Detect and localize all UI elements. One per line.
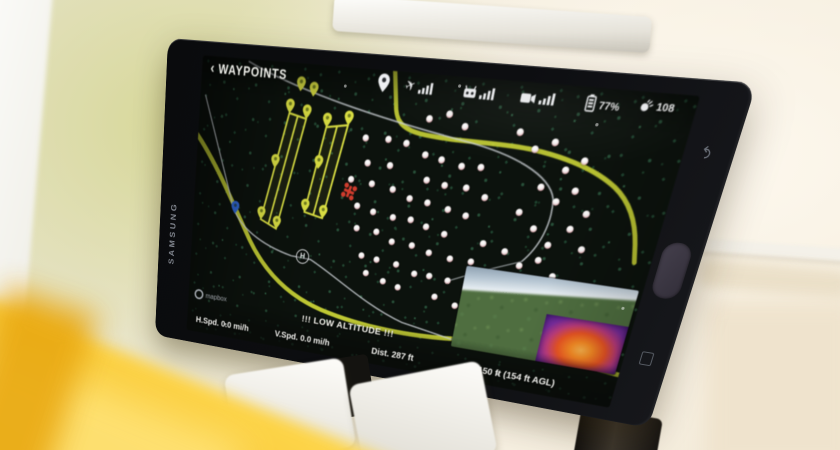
aircraft-signal-indicator: ✈ xyxy=(404,79,435,96)
waypoint-pin[interactable] xyxy=(296,76,306,92)
signal-bars-icon xyxy=(479,85,498,101)
waypoint-pin[interactable] xyxy=(272,215,281,229)
waypoint-pin[interactable] xyxy=(285,98,295,113)
samsung-logo: SAMSUNG xyxy=(168,138,183,265)
blue-pin[interactable] xyxy=(231,200,240,214)
waypoint-pin[interactable] xyxy=(257,206,266,220)
video-signal-indicator xyxy=(520,89,558,107)
mapbox-icon xyxy=(194,288,203,299)
remote-signal-indicator xyxy=(462,84,497,101)
video-camera-icon xyxy=(520,92,538,105)
home-button[interactable] xyxy=(649,241,694,300)
waypoint-pin[interactable] xyxy=(344,110,355,125)
waypoint-pin[interactable] xyxy=(314,155,324,170)
signal-bars-icon xyxy=(538,90,558,106)
signal-bars-icon xyxy=(418,80,436,96)
waypoint-pin[interactable] xyxy=(271,154,281,169)
satellite-count: 108 xyxy=(655,101,676,116)
waypoint-pin[interactable] xyxy=(322,112,333,127)
waypoint-pin[interactable] xyxy=(318,204,328,218)
satellite-icon xyxy=(638,99,655,114)
aircraft-icon: ✈ xyxy=(404,77,417,95)
waypoint-pin[interactable] xyxy=(309,81,319,97)
background-shape xyxy=(705,300,840,450)
app-screen[interactable]: H ‹ WAYPOINTS xyxy=(187,55,701,407)
back-icon[interactable]: ‹ xyxy=(210,62,216,75)
mapbox-label: mapbox xyxy=(205,292,227,303)
recents-capacitive-icon[interactable] xyxy=(639,351,655,366)
back-capacitive-icon[interactable]: ↶ xyxy=(693,144,715,159)
remote-controller-icon xyxy=(462,85,478,100)
battery-percent: 77% xyxy=(597,100,621,115)
battery-indicator: 77% xyxy=(583,94,622,114)
waypoint-pin[interactable] xyxy=(300,198,310,212)
dust-speck xyxy=(224,323,226,326)
waypoint-pin[interactable] xyxy=(302,104,312,119)
photo-scene: SAMSUNG ↶ H xyxy=(0,0,840,450)
satellite-indicator: 108 xyxy=(638,99,676,116)
